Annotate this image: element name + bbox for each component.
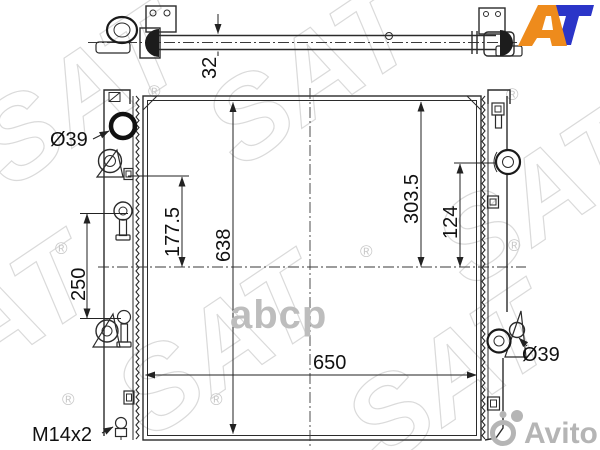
sat-watermark-layer: SAT SAT SAT SAT SAT SAT ® ® ® ® ® ® ®: [0, 0, 600, 450]
registered-icon: ®: [62, 390, 75, 409]
dim-label-top-depth: 32: [199, 57, 221, 79]
dim-label-inlet: Ø39: [50, 129, 88, 151]
avito-logo-dot: [511, 410, 523, 422]
small-port-upper-left: [124, 169, 133, 180]
registered-icon: ®: [360, 242, 373, 261]
registered-icon: ®: [55, 239, 68, 258]
dim-label-638: 638: [213, 229, 235, 262]
registered-icon: ®: [210, 390, 223, 409]
avito-logo-dot: [500, 411, 507, 418]
at-logo: [518, 5, 594, 46]
avito-watermark: Avito: [493, 410, 598, 450]
dim-label-177-5: 177.5: [162, 207, 184, 257]
drain-plug: [116, 418, 127, 441]
dim-drain-thread: M14x2: [32, 424, 113, 446]
abcp-watermark: abcp: [230, 293, 327, 337]
dim-label-250: 250: [68, 268, 90, 301]
registered-icon: ®: [506, 85, 519, 104]
radiator-drawing-page: SAT SAT SAT SAT SAT SAT ® ® ® ® ® ® ®: [0, 0, 600, 450]
dim-label-650: 650: [313, 352, 346, 374]
avito-watermark-text: Avito: [524, 417, 598, 450]
oil-cooler-fitting-lower: [117, 311, 131, 348]
dim-label-303-5: 303.5: [401, 174, 423, 224]
dim-upper-right-offset: 303.5: [401, 102, 423, 267]
bleed-fitting-top-right: [492, 103, 504, 128]
dim-label-124: 124: [440, 206, 462, 239]
upper-hose-fitting: [97, 150, 123, 178]
dim-label-m14x2: M14x2: [32, 424, 92, 446]
abcp-watermark-text: abcp: [230, 293, 327, 337]
radiator-technical-drawing: SAT SAT SAT SAT SAT SAT ® ® ® ® ® ® ®: [0, 0, 600, 450]
dim-top-depth: 32: [199, 14, 221, 79]
oil-cooler-fitting-upper: [114, 202, 132, 240]
registered-icon: ®: [508, 236, 521, 255]
dim-label-outlet: Ø39: [522, 344, 560, 366]
